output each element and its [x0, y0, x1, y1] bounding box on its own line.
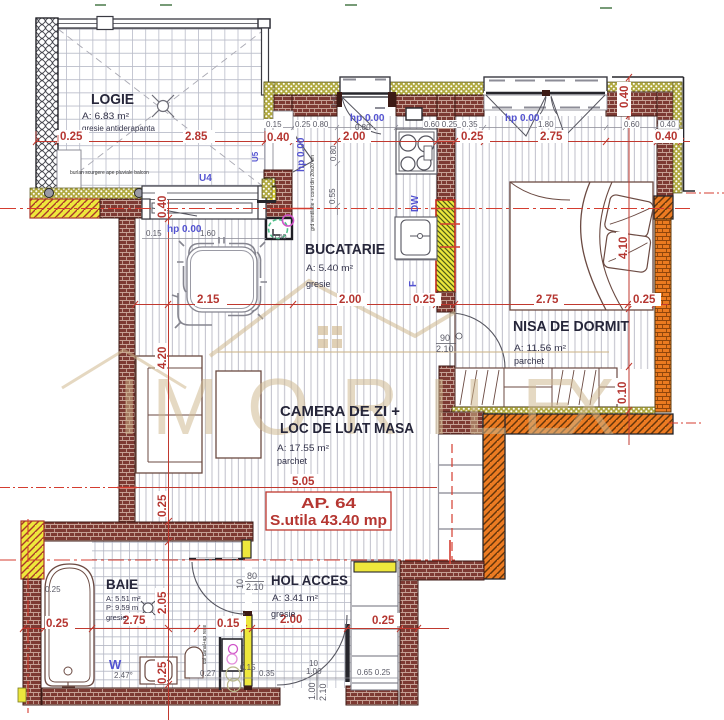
svg-text:2.15: 2.15	[197, 294, 220, 306]
svg-text:2.75: 2.75	[536, 294, 559, 306]
svg-text:0.25: 0.25	[633, 294, 656, 306]
svg-text:0.25: 0.25	[413, 294, 436, 306]
svg-text:S.utila 43.40 mp: S.utila 43.40 mp	[270, 512, 387, 529]
svg-text:2.75: 2.75	[123, 615, 146, 627]
svg-text:U4: U4	[199, 173, 212, 184]
svg-text:0.35: 0.35	[462, 120, 478, 129]
svg-text:P: 9.59 m: P: 9.59 m	[106, 603, 138, 612]
svg-text:2.10: 2.10	[318, 683, 328, 701]
svg-text:LOGIE: LOGIE	[91, 91, 134, 108]
svg-text:A: 3.41 m²: A: 3.41 m²	[272, 593, 318, 603]
svg-text:0.40: 0.40	[655, 131, 677, 143]
svg-text:2.47°: 2.47°	[114, 671, 133, 680]
svg-text:A: 5.40 m²: A: 5.40 m²	[306, 263, 353, 273]
svg-text:4.10: 4.10	[618, 237, 630, 259]
svg-text:5.05: 5.05	[292, 476, 315, 488]
svg-text:2.10: 2.10	[436, 344, 454, 354]
svg-text:U5: U5	[251, 151, 260, 162]
svg-text:0.60: 0.60	[624, 120, 640, 129]
svg-text:0.25: 0.25	[60, 131, 83, 143]
svg-text:BAIE: BAIE	[106, 576, 138, 592]
svg-text:0.40: 0.40	[619, 86, 631, 108]
svg-text:burlan scurgere ape pluviale b: burlan scurgere ape pluviale balcon	[70, 170, 149, 176]
svg-text:4.20: 4.20	[157, 347, 169, 369]
svg-text:CAMERA DE ZI +: CAMERA DE ZI +	[280, 403, 400, 420]
svg-text:hp 0.00: hp 0.00	[296, 137, 307, 172]
svg-text:hp 0.00: hp 0.00	[167, 224, 202, 235]
svg-text:0.15: 0.15	[240, 663, 256, 672]
svg-text:X: X	[562, 362, 615, 451]
svg-text:M: M	[152, 362, 219, 451]
svg-text:0.40: 0.40	[331, 94, 338, 107]
svg-text:parchet: parchet	[514, 356, 545, 366]
svg-text:0.40: 0.40	[272, 232, 287, 241]
svg-text:0.15: 0.15	[146, 229, 162, 238]
svg-text:0.25: 0.25	[157, 661, 169, 684]
svg-text:0.15: 0.15	[266, 120, 282, 129]
svg-text:hp 0.00: hp 0.00	[350, 113, 385, 124]
svg-text:0.10: 0.10	[617, 382, 629, 404]
svg-text:0.80: 0.80	[355, 123, 371, 132]
svg-text:I: I	[118, 362, 140, 451]
svg-text:DW: DW	[410, 195, 421, 212]
svg-text:10: 10	[309, 659, 318, 668]
svg-text:BUCATARIE: BUCATARIE	[305, 241, 385, 258]
svg-text:col canal+ap rece: col canal+ap rece	[202, 624, 208, 664]
svg-text:LOC DE LUAT MASA: LOC DE LUAT MASA	[280, 420, 414, 437]
svg-text:90: 90	[440, 333, 450, 343]
svg-text:2.10: 2.10	[246, 582, 264, 592]
svg-text:2.00: 2.00	[339, 294, 361, 306]
svg-text:2.05: 2.05	[157, 591, 169, 614]
svg-text:gresie: gresie	[306, 279, 331, 289]
svg-text:gresie: gresie	[106, 613, 126, 622]
svg-text:HOL ACCES: HOL ACCES	[271, 572, 348, 588]
svg-text:A: 11.56 m²: A: 11.56 m²	[514, 343, 566, 353]
svg-text:0.40: 0.40	[660, 120, 676, 129]
svg-text:gresie: gresie	[271, 609, 296, 619]
svg-text:gresie antiderapanta: gresie antiderapanta	[82, 124, 155, 133]
svg-text:grd ventilatie + cond din 20x2: grd ventilatie + cond din 20x20 cm	[310, 155, 316, 231]
svg-text:2.85: 2.85	[185, 131, 208, 143]
svg-text:0.55: 0.55	[328, 188, 337, 204]
svg-text:A: 6.83 m²: A: 6.83 m²	[82, 111, 129, 121]
svg-text:0.60 0.25: 0.60 0.25	[424, 120, 458, 129]
svg-text:2.75: 2.75	[540, 131, 563, 143]
svg-text:F: F	[408, 281, 419, 287]
svg-text:0.25: 0.25	[46, 618, 69, 630]
svg-text:1.60: 1.60	[200, 229, 216, 238]
svg-text:0.40: 0.40	[157, 196, 169, 218]
svg-text:10: 10	[235, 579, 245, 589]
svg-text:0.27: 0.27	[200, 669, 216, 678]
svg-text:parchet: parchet	[277, 456, 308, 466]
svg-text:2.00: 2.00	[343, 131, 365, 143]
svg-text:0.25: 0.25	[372, 615, 395, 627]
svg-text:0.40: 0.40	[267, 132, 289, 144]
svg-text:I: I	[428, 362, 450, 451]
svg-text:0.25 0.80: 0.25 0.80	[295, 120, 329, 129]
svg-text:AP. 64: AP. 64	[301, 495, 357, 512]
svg-text:80: 80	[247, 571, 257, 581]
svg-text:NISA DE DORMIT: NISA DE DORMIT	[513, 318, 629, 335]
svg-text:0.65 0.25: 0.65 0.25	[357, 668, 391, 677]
svg-text:A: 17.55 m²: A: 17.55 m²	[277, 443, 329, 453]
svg-text:hp 0.00: hp 0.00	[505, 113, 540, 124]
svg-text:W: W	[109, 657, 122, 672]
svg-text:1.00: 1.00	[307, 682, 317, 700]
svg-text:0.25: 0.25	[157, 494, 169, 517]
svg-text:0.35: 0.35	[259, 669, 275, 678]
svg-text:L: L	[464, 362, 509, 451]
svg-text:1.80: 1.80	[538, 120, 554, 129]
svg-text:A: 5.51 m²: A: 5.51 m²	[106, 594, 141, 603]
svg-text:0.25: 0.25	[461, 131, 484, 143]
svg-text:0.25: 0.25	[45, 585, 61, 594]
svg-text:0.80: 0.80	[329, 145, 338, 161]
svg-text:0.15: 0.15	[217, 618, 240, 630]
svg-text:1.00: 1.00	[306, 667, 322, 676]
